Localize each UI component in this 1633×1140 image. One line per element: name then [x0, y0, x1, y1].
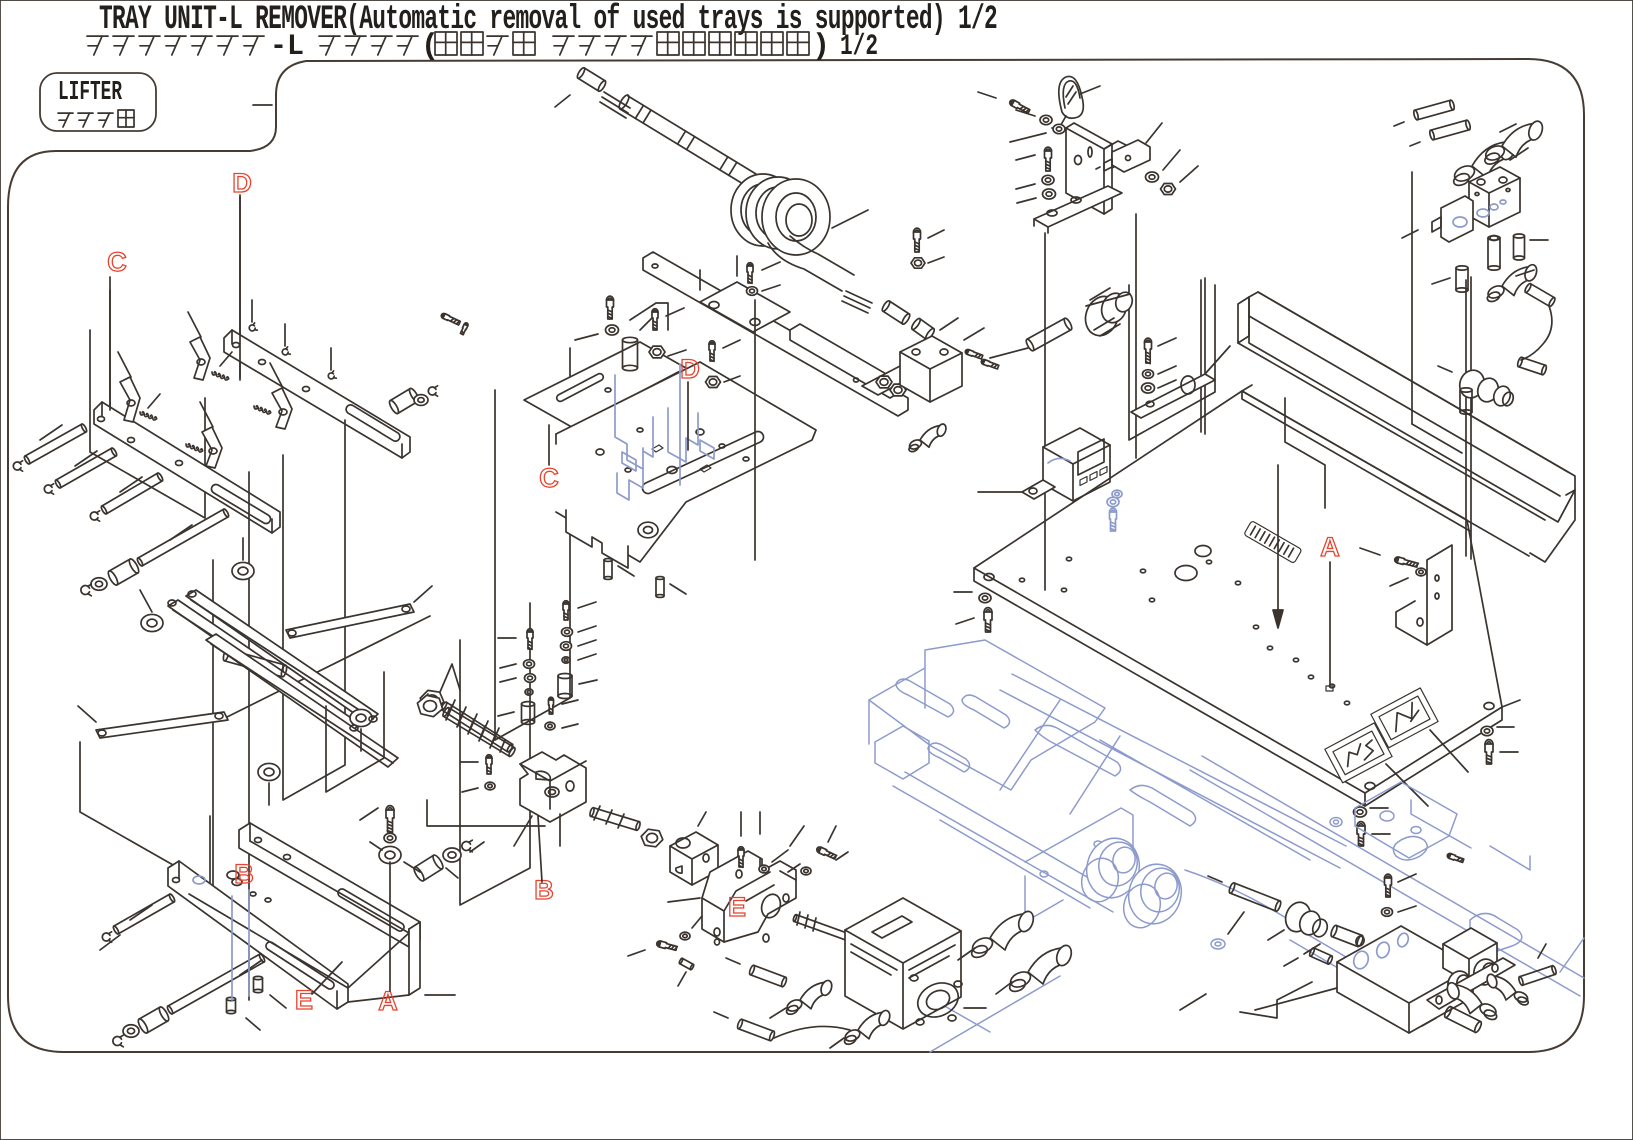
svg-text:D: D [232, 168, 252, 198]
svg-text:LIFTER: LIFTER [58, 78, 123, 108]
svg-text:D: D [680, 354, 700, 384]
svg-text:): ) [812, 30, 830, 64]
svg-text:A: A [1320, 532, 1340, 562]
svg-text:B: B [534, 875, 554, 905]
svg-text:-L: -L [270, 30, 304, 64]
svg-text:1/2: 1/2 [840, 30, 878, 64]
svg-text:E: E [728, 892, 746, 922]
svg-text:A: A [378, 986, 398, 1016]
svg-text:C: C [539, 463, 559, 493]
svg-text:C: C [107, 247, 127, 277]
svg-text:E: E [295, 985, 313, 1015]
svg-text:B: B [234, 859, 254, 889]
svg-text:(: ( [421, 30, 439, 64]
